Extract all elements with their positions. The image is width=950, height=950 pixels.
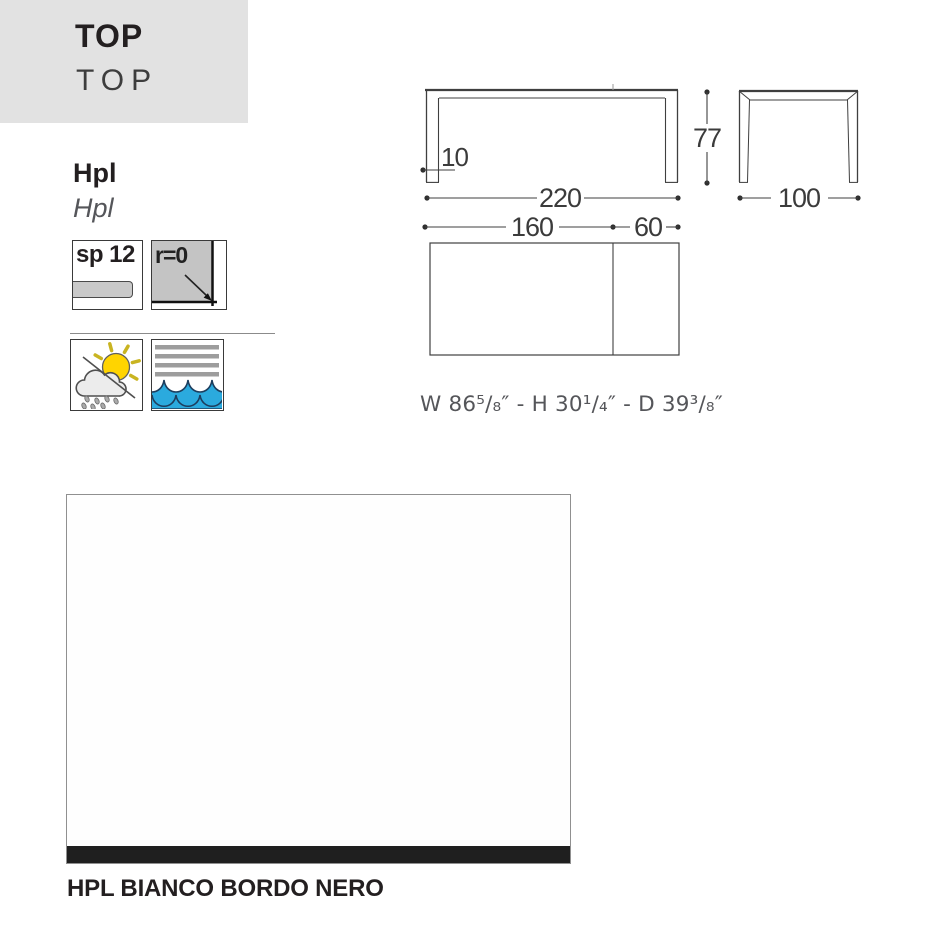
side-view	[739, 91, 858, 182]
fixed-top-value: 160	[511, 212, 553, 242]
thickness-bar-icon	[73, 281, 133, 298]
dimension-height: 77	[693, 89, 721, 185]
right-chamfer	[847, 91, 858, 100]
depth-value: 100	[778, 183, 820, 210]
finish-swatch	[66, 494, 571, 864]
rain-drops	[81, 395, 119, 409]
left-leg-inner-side	[748, 100, 750, 182]
page-title-translation: TOP	[76, 64, 158, 98]
thickness-label: sp 12	[76, 241, 135, 269]
corner-radius-spec-box: r=0	[151, 240, 227, 310]
swatch-black-edge-bar	[67, 846, 570, 863]
height-value: 77	[693, 123, 721, 153]
header-box: TOP TOP	[0, 0, 248, 123]
finish-label: HPL BIANCO BORDO NERO	[67, 875, 384, 903]
dimension-leg-width: 10	[420, 142, 468, 173]
thickness-spec-box: sp 12	[72, 240, 143, 310]
top-view	[430, 243, 679, 355]
corner-radius-label: r=0	[155, 242, 187, 268]
total-width-value: 220	[539, 183, 581, 213]
imperial-dimensions: W 86⁵/₈″ - H 30¹/₄″ - D 39³/₈″	[420, 392, 723, 417]
side-view-drawing: 100	[725, 80, 890, 210]
leg-width-value: 10	[441, 142, 468, 172]
material-name: Hpl	[73, 158, 117, 189]
left-chamfer	[739, 91, 750, 100]
page-title: TOP	[75, 18, 143, 55]
front-and-top-view-drawing: 10 77 220 160 60	[410, 80, 730, 370]
right-leg-inner-side	[848, 100, 850, 182]
wave-top-row	[152, 380, 222, 409]
sun-cloud-rain-icon	[71, 340, 141, 409]
dimension-depth: 100	[737, 183, 860, 210]
dimension-total-width: 220	[424, 183, 680, 213]
water-waves-icon	[152, 340, 222, 409]
extension-value: 60	[634, 212, 662, 242]
corner-radius-diagram: r=0	[152, 241, 225, 308]
material-name-translation: Hpl	[73, 193, 114, 224]
outdoor-use-box	[70, 339, 143, 411]
catalog-page: TOP TOP Hpl Hpl sp 12 r=0	[0, 0, 950, 950]
stripes	[155, 345, 219, 377]
dimension-top-split: 160 60	[422, 212, 680, 242]
tabletop-plan	[430, 243, 679, 355]
water-resistant-box	[151, 339, 224, 411]
divider-line	[70, 333, 275, 334]
